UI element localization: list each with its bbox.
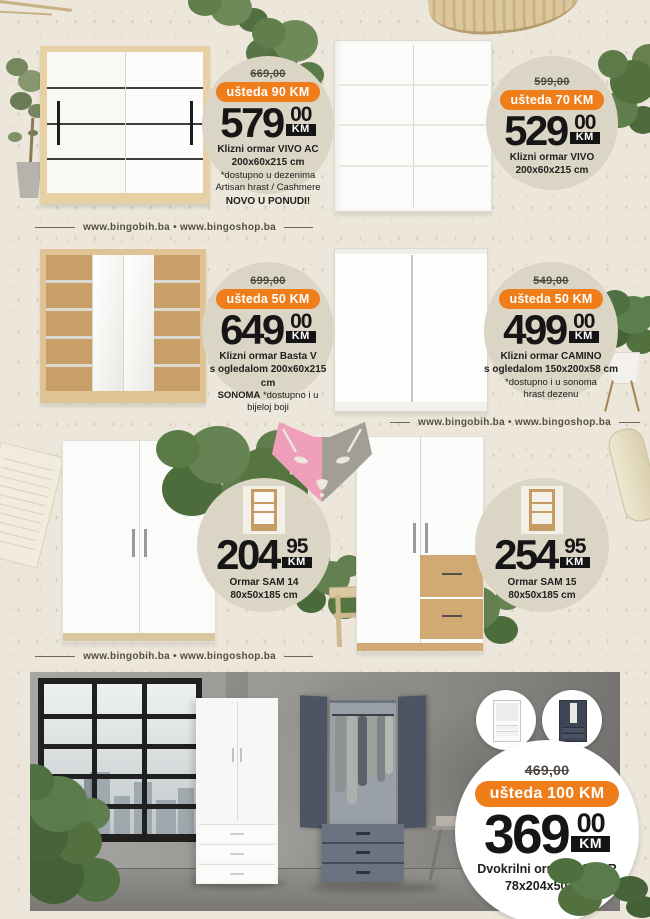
product-image-camino	[334, 248, 488, 412]
straw-hat-decoration	[425, 0, 583, 41]
wardrobe-doors	[47, 52, 203, 193]
old-price: 469,00	[455, 762, 639, 778]
product-name: Dvokrilni ormar GELAR	[455, 861, 639, 879]
olive-plant	[6, 58, 28, 76]
plant-decoration	[548, 858, 584, 884]
price-cents: 95	[564, 538, 585, 556]
product-note: Artisan hrast / Cashmere	[202, 182, 334, 195]
newspaper-decoration	[0, 442, 65, 569]
product-dimensions: 80x50x185 cm	[475, 589, 609, 602]
price-bubble-vivo: 599,00 ušteda 70 KM 529 00 KM Klizni orm…	[486, 56, 618, 190]
price: 369 00 KM	[455, 811, 639, 858]
product-image-sam-15	[356, 436, 484, 652]
old-price: 669,00	[202, 68, 334, 80]
price: 254 95 KM	[475, 537, 609, 573]
product-inset-image	[520, 485, 564, 535]
website-divider: www.bingobih.ba • www.bingoshop.ba	[390, 417, 640, 428]
product-name: Klizni ormar Basta V	[202, 350, 334, 363]
old-price: 699,00	[202, 275, 334, 287]
website-urls[interactable]: www.bingobih.ba • www.bingoshop.ba	[83, 222, 276, 233]
product-name: Klizni ormar CAMINO	[484, 350, 618, 363]
rolled-paper-decoration	[605, 425, 650, 525]
product-dimensions: s ogledalom 200x60x215 cm	[202, 363, 334, 389]
product-dimensions: s ogledalom 150x200x58 cm	[484, 363, 618, 376]
price: 499 00 KM	[484, 312, 618, 348]
price-main: 254	[494, 537, 557, 573]
plant-decoration	[188, 0, 222, 16]
product-name: Klizni ormar VIVO AC	[202, 143, 334, 156]
product-dimensions: 78x204x50 cm	[455, 878, 639, 896]
currency-box: KM	[282, 557, 312, 568]
price: 649 00 KM	[202, 312, 334, 348]
shadow	[310, 882, 440, 893]
product-note: bijeloj boji	[202, 402, 334, 415]
product-dimensions: 200x60x215 cm	[486, 164, 618, 177]
price-cents: 00	[574, 114, 595, 132]
website-divider: www.bingobih.ba • www.bingoshop.ba	[35, 222, 313, 233]
twig-decoration	[0, 11, 52, 16]
old-price: 549,00	[484, 275, 618, 287]
mini-wardrobe-gray	[559, 700, 587, 742]
product-note: hrast dezenu	[484, 389, 618, 402]
currency-box: KM	[286, 124, 316, 135]
price-bubble-camino: 549,00 ušteda 50 KM 499 00 KM Klizni orm…	[484, 262, 618, 400]
plant-stand-leg	[630, 380, 640, 412]
product-note: SONOMA *dostupno i u	[202, 390, 334, 403]
website-urls[interactable]: www.bingobih.ba • www.bingoshop.ba	[83, 651, 276, 662]
price-bubble-sam-15: 254 95 KM Ormar SAM 15 80x50x185 cm	[475, 478, 609, 612]
price-cents: 00	[290, 106, 311, 124]
product-inset-image	[242, 485, 286, 535]
product-image-sam-14	[62, 440, 216, 642]
product-note: *dostupno i u sonoma	[484, 377, 618, 390]
product-image-vivo	[334, 40, 492, 212]
new-offer-label: NOVO U PONUDI!	[202, 195, 334, 208]
flyer-page: 669,00 ušteda 90 KM 579 00 KM Klizni orm…	[0, 0, 650, 919]
product-dimensions: 80x50x185 cm	[197, 589, 331, 602]
price-main: 369	[484, 811, 568, 858]
window	[38, 678, 202, 842]
product-image-vivo-ac	[40, 46, 210, 204]
currency-box: KM	[570, 132, 600, 143]
mini-wardrobe-white	[493, 700, 521, 742]
product-dimensions: 200x60x215 cm	[202, 156, 334, 169]
currency-box: KM	[571, 836, 610, 852]
price-main: 499	[503, 312, 566, 348]
plant-decoration	[156, 430, 200, 468]
price: 529 00 KM	[486, 113, 618, 149]
price-bubble-sam-14: 204 95 KM Ormar SAM 14 80x50x185 cm	[197, 478, 331, 612]
price-cents: 95	[286, 538, 307, 556]
currency-box: KM	[286, 331, 316, 342]
price-main: 649	[220, 312, 283, 348]
price-cents: 00	[290, 313, 311, 331]
photo-wardrobe-white	[196, 698, 278, 884]
price-bubble-vivo-ac: 669,00 ušteda 90 KM 579 00 KM Klizni orm…	[202, 56, 334, 194]
price-bubble-basta-v: 699,00 ušteda 50 KM 649 00 KM Klizni orm…	[202, 262, 334, 400]
price-cents: 00	[573, 313, 594, 331]
price-main: 579	[220, 105, 283, 141]
price-cents: 00	[577, 812, 605, 835]
price-main: 204	[216, 537, 279, 573]
old-price: 599,00	[486, 76, 618, 88]
olive-plant-trunk	[29, 118, 35, 168]
price: 204 95 KM	[197, 537, 331, 573]
currency-box: KM	[569, 331, 599, 342]
plant-decoration	[252, 18, 286, 48]
product-image-basta-v	[40, 249, 206, 403]
price: 579 00 KM	[202, 105, 334, 141]
twig-decoration	[0, 0, 72, 12]
price-bubble-gelar: 469,00 ušteda 100 KM 369 00 KM Dvokrilni…	[455, 740, 639, 919]
website-urls[interactable]: www.bingobih.ba • www.bingoshop.ba	[418, 417, 611, 428]
plant-decoration	[598, 50, 628, 78]
currency-box: KM	[560, 557, 590, 568]
price-main: 529	[504, 113, 567, 149]
product-note: *dostupno u dezenima	[202, 170, 334, 183]
website-divider: www.bingobih.ba • www.bingoshop.ba	[35, 651, 313, 662]
